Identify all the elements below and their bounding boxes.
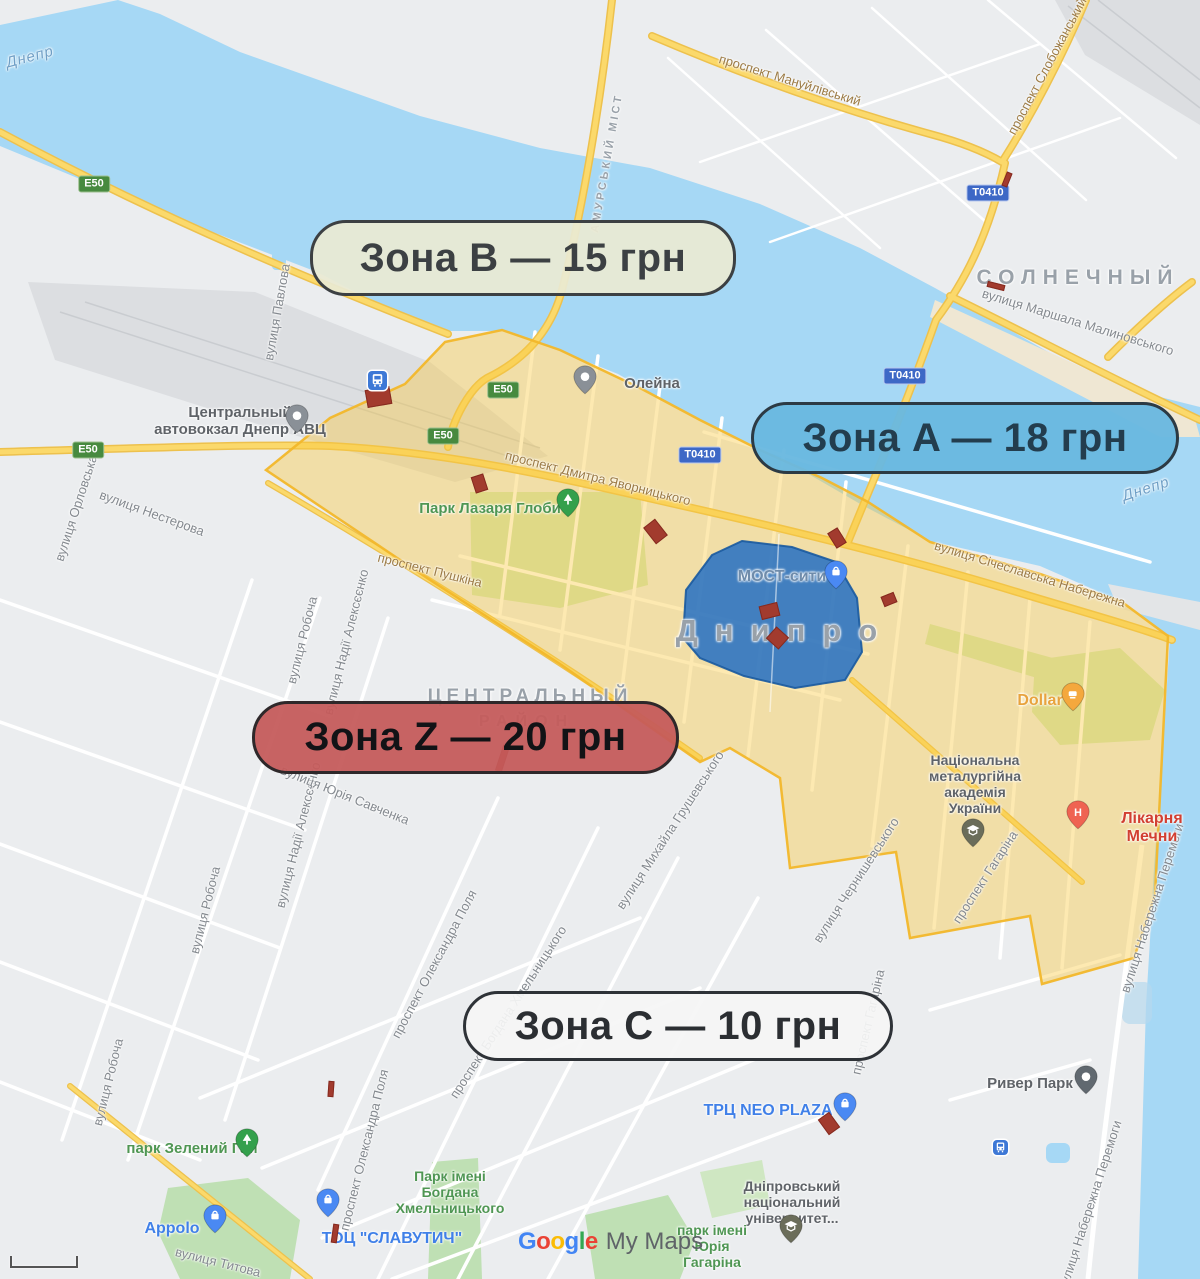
shop-pin-icon[interactable] [315, 1188, 341, 1223]
cafe-pin-icon[interactable] [1060, 682, 1086, 717]
red-zone-marker[interactable] [327, 1081, 334, 1097]
transit-station-icon[interactable] [368, 371, 387, 390]
route-badge: T0410 [883, 368, 926, 385]
school-pin-icon[interactable] [778, 1214, 804, 1249]
zone-pill-z[interactable]: Зона Z — 20 грн [252, 701, 679, 774]
my-maps-label: My Maps [606, 1228, 703, 1256]
map-canvas[interactable]: проспект Мануйлівськийпроспект Слобожанс… [0, 0, 1200, 1279]
map-base [0, 0, 1200, 1279]
svg-text:H: H [1074, 807, 1082, 819]
tree-pin-icon[interactable] [555, 488, 581, 523]
tree-pin-icon[interactable] [234, 1128, 260, 1163]
google-logo: Google [518, 1228, 598, 1256]
route-badge: T0410 [678, 447, 721, 464]
route-badge: E50 [427, 428, 459, 445]
zone-pill-a[interactable]: Зона A — 18 грн [751, 402, 1179, 474]
route-badge: T0410 [966, 185, 1009, 202]
zone-pill-c[interactable]: Зона C — 10 грн [463, 991, 893, 1061]
transit-station-icon[interactable] [993, 1140, 1008, 1155]
route-badge: E50 [78, 176, 110, 193]
route-badge: E50 [72, 442, 104, 459]
shop-pin-icon[interactable] [823, 560, 849, 595]
gray-pin-icon[interactable] [284, 404, 310, 439]
shop-pin-icon[interactable] [202, 1204, 228, 1239]
school-pin-icon[interactable] [960, 818, 986, 853]
hospital-pin-icon[interactable]: H [1065, 800, 1091, 835]
pond [1046, 1143, 1070, 1163]
dark-pin-icon[interactable] [1073, 1065, 1099, 1100]
google-my-maps-attribution[interactable]: Google My Maps [518, 1228, 703, 1256]
zone-pill-b[interactable]: Зона B — 15 грн [310, 220, 736, 296]
pond [1122, 982, 1152, 1024]
gray-pin-icon[interactable] [572, 365, 598, 400]
shop-pin-icon[interactable] [832, 1092, 858, 1127]
route-badge: E50 [487, 382, 519, 399]
map-scale-bar [10, 1256, 78, 1268]
